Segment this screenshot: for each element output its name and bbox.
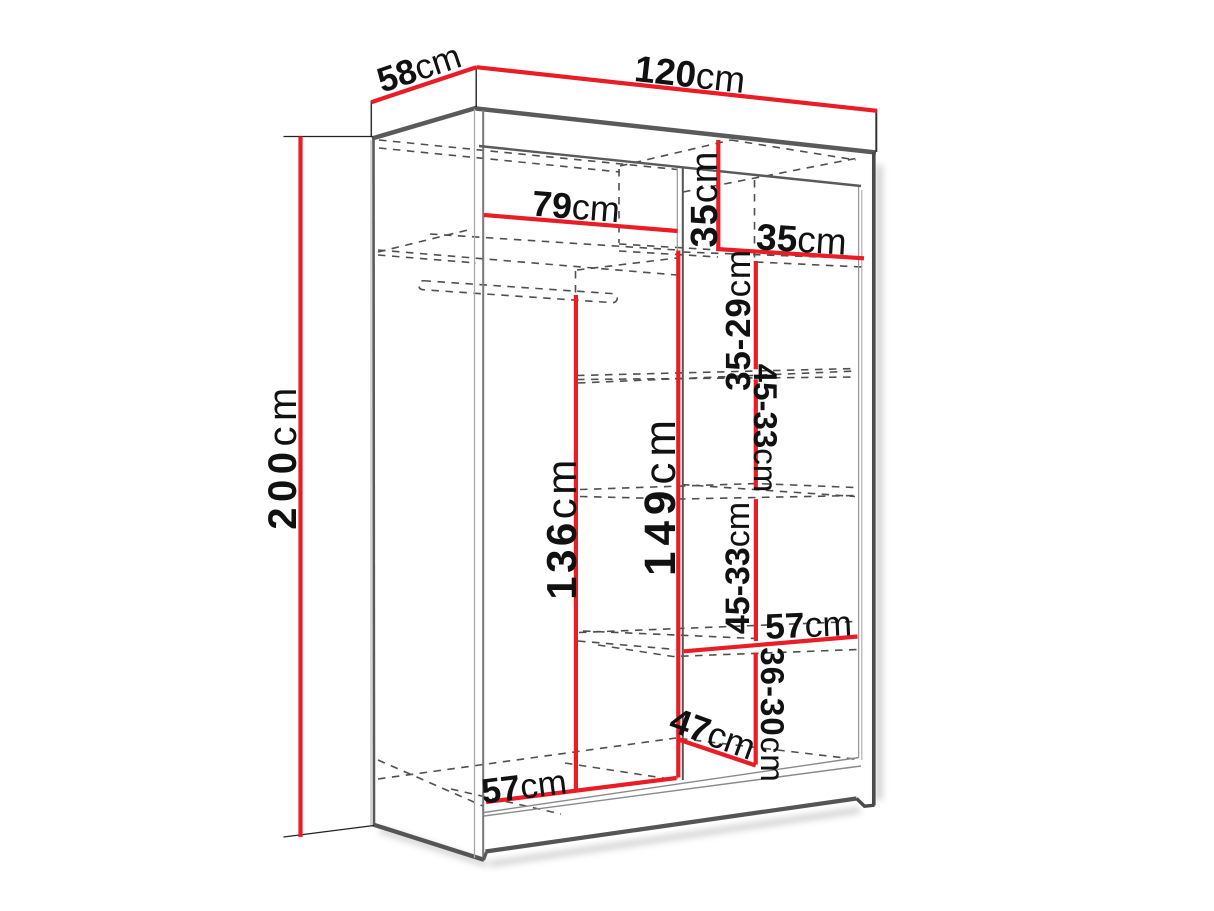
svg-text:136cm: 136cm	[538, 456, 585, 600]
svg-text:45-33cm: 45-33cm	[719, 502, 757, 634]
svg-text:36-30cm: 36-30cm	[755, 647, 792, 782]
svg-text:200cm: 200cm	[261, 382, 305, 530]
svg-text:149cm: 149cm	[636, 414, 685, 576]
svg-text:45-33cm: 45-33cm	[748, 364, 785, 492]
svg-text:79cm: 79cm	[531, 182, 622, 230]
svg-text:35cm: 35cm	[684, 151, 726, 248]
svg-text:57cm: 57cm	[764, 603, 852, 647]
svg-text:35cm: 35cm	[755, 216, 848, 262]
